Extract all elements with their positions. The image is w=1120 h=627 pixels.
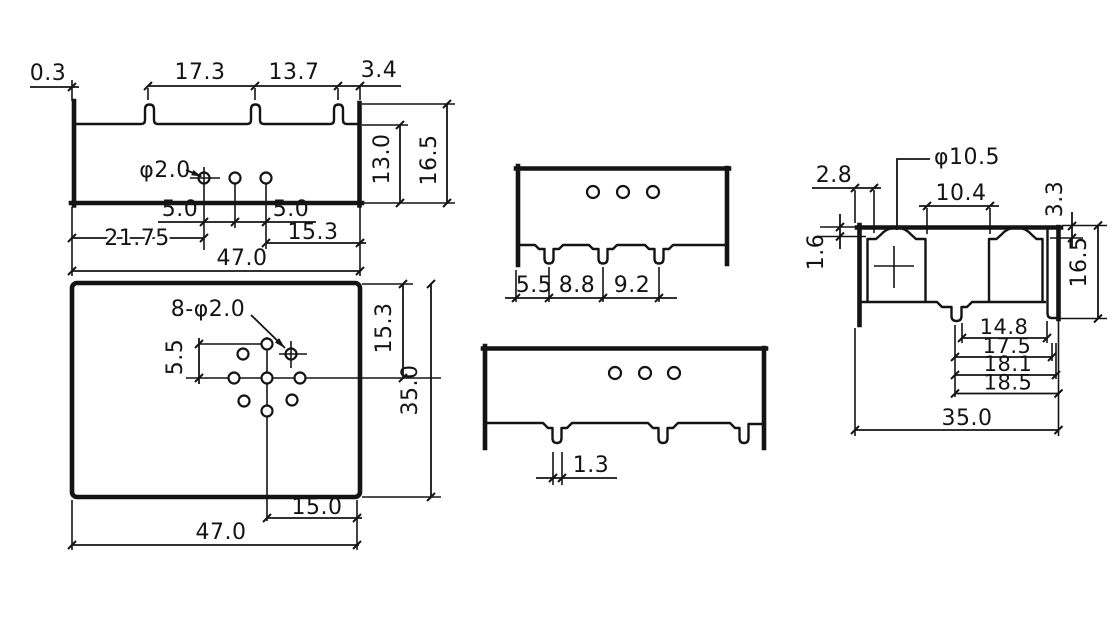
end-view-walls (857, 225, 1061, 325)
dim-front-inner-height: 13.0 (370, 134, 395, 185)
dim-front-hole-pitch-a: 5.0 (162, 197, 199, 222)
dim-front-wall-offset: 0.3 (30, 61, 67, 86)
side-b-walls (483, 346, 766, 448)
dim-end-top-wall: 1.6 (804, 234, 829, 271)
side-a-walls (516, 166, 729, 265)
dim-end-overall-width: 35.0 (942, 406, 993, 431)
front-section-view: 0.3 17.3 13.7 3.4 φ2.0 5.0 5.0 21.75 15.… (30, 58, 455, 276)
side-a-bottom-profile (520, 245, 725, 264)
dim-end-edge-offset: 2.8 (816, 163, 853, 188)
front-view-walls (71, 101, 362, 206)
dim-front-offset-left: 21.75 (104, 226, 169, 251)
side-a-hole-3 (647, 186, 659, 198)
dim-top-overall-width: 47.0 (196, 520, 247, 545)
end-view-cavity-left (868, 228, 926, 302)
dim-top-center-offset-x: 15.0 (292, 495, 343, 520)
top-view-holes (229, 339, 306, 417)
dim-top-center-offset-y: 15.3 (372, 303, 397, 354)
dim-end-lip-depth: 3.3 (1043, 181, 1068, 218)
dim-end-cavity-dia: φ10.5 (934, 145, 1000, 170)
dim-side-b-pin-width: 1.3 (573, 453, 610, 478)
end-view-cavity-right (989, 228, 1043, 302)
side-b-hole-2 (639, 367, 651, 379)
side-view-b: 1.3 (483, 346, 766, 485)
dim-top-overall-depth: 35.0 (398, 365, 423, 416)
side-a-hole-1 (587, 186, 599, 198)
dim-front-tab-pitch-1: 17.3 (175, 60, 226, 85)
dim-front-overall-width: 47.0 (217, 246, 268, 271)
end-view: 2.8 φ10.5 10.4 1.6 3.3 16.5 14.8 17.5 18… (804, 145, 1107, 436)
drawing-canvas: 0.3 17.3 13.7 3.4 φ2.0 5.0 5.0 21.75 15.… (0, 0, 1120, 627)
technical-drawing: 0.3 17.3 13.7 3.4 φ2.0 5.0 5.0 21.75 15.… (0, 0, 1120, 627)
dim-front-offset-right: 15.3 (288, 220, 339, 245)
dim-front-overall-height: 16.5 (417, 135, 442, 186)
dim-side-a-pin-off-1: 5.5 (516, 273, 553, 298)
side-b-hole-1 (609, 367, 621, 379)
front-hole-3 (261, 173, 272, 184)
dim-side-a-pin-pitch-1: 8.8 (559, 273, 596, 298)
end-view-dim-ticks (836, 184, 1102, 434)
dim-end-span-4: 18.5 (984, 371, 1033, 395)
side-b-hole-3 (668, 367, 680, 379)
dim-side-a-pin-pitch-2: 9.2 (614, 273, 651, 298)
side-b-bottom-profile (487, 423, 762, 443)
dim-front-hole-dia: φ2.0 (139, 158, 191, 183)
dim-end-cavity-gap: 10.4 (936, 181, 987, 206)
dim-top-hole-row-pitch: 5.5 (163, 339, 188, 376)
front-hole-2 (230, 173, 241, 184)
dim-top-holes-note: 8-φ2.0 (171, 297, 245, 322)
dim-end-overall-height: 16.5 (1067, 237, 1092, 288)
side-a-hole-2 (617, 186, 629, 198)
end-view-inner-right-wall (1048, 229, 1057, 318)
side-view-a: 5.5 8.8 9.2 (505, 166, 729, 302)
dim-front-hole-pitch-b: 5.0 (273, 197, 310, 222)
end-view-crosshair (874, 246, 914, 288)
front-view-top-profile (76, 105, 358, 125)
top-view: 8-φ2.0 5.5 15.3 35.0 15.0 47.0 (68, 280, 441, 550)
dim-front-tab-edge: 3.4 (361, 58, 398, 83)
dim-front-tab-pitch-2: 13.7 (269, 60, 320, 85)
